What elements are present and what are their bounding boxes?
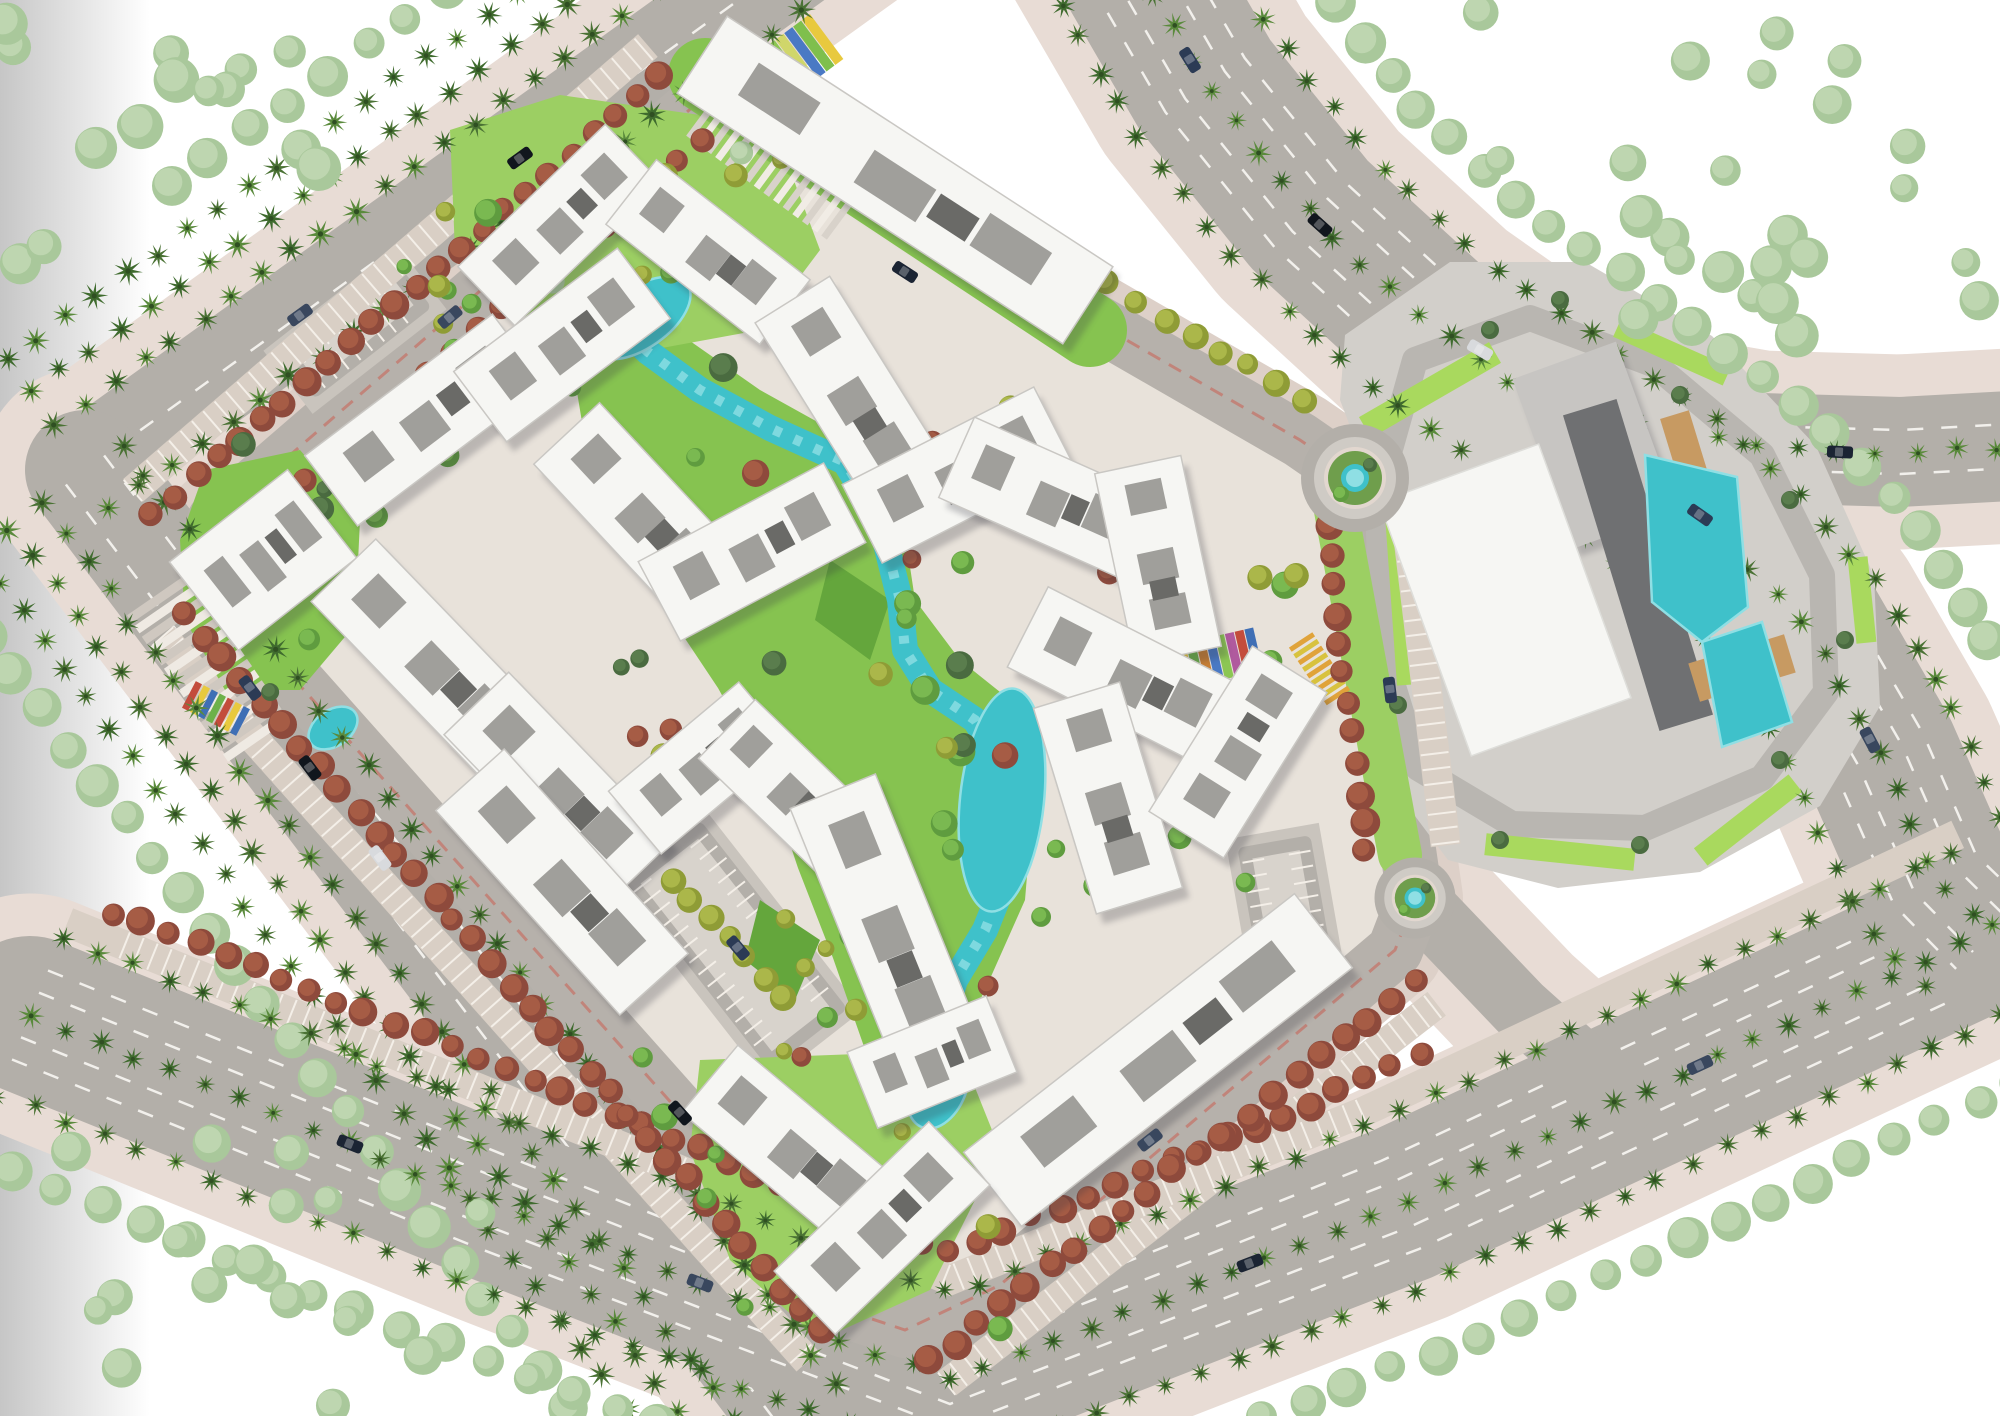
round-tree-light	[251, 407, 269, 425]
palm-core	[1388, 284, 1393, 289]
round-tree-light	[209, 445, 226, 462]
round-tree-light	[1380, 989, 1399, 1008]
palm-core	[168, 1066, 172, 1070]
palm-core	[1896, 787, 1901, 792]
palm-core	[168, 979, 172, 983]
round-tree-light	[771, 986, 790, 1005]
palm-core	[273, 647, 278, 652]
palm-core	[1726, 1142, 1730, 1146]
palm-core	[1261, 17, 1266, 22]
round-tree-light	[300, 1060, 327, 1087]
palm-core	[92, 293, 97, 298]
round-tree-light	[547, 1078, 568, 1099]
round-tree-light	[1815, 87, 1842, 114]
palm-core	[149, 304, 154, 309]
palm-core	[308, 855, 313, 860]
palm-core	[237, 769, 242, 774]
palm-core	[367, 763, 372, 768]
round-tree-light	[1487, 147, 1507, 167]
palm-core	[232, 818, 237, 823]
car-roof	[1835, 447, 1843, 456]
palm-core	[1874, 577, 1878, 581]
palm-core	[153, 788, 158, 793]
palm-core	[699, 1367, 704, 1372]
round-tree-light	[1012, 1274, 1033, 1295]
palm-core	[374, 941, 379, 946]
round-tree-light	[1406, 970, 1422, 986]
palm-core	[1750, 1037, 1754, 1041]
round-tree-light	[1322, 545, 1339, 562]
palm-core	[249, 849, 254, 854]
round-tree-light	[1238, 355, 1253, 370]
palm-core	[268, 216, 273, 221]
round-tree-light	[687, 449, 700, 462]
round-tree-light	[129, 1207, 155, 1233]
palm-core	[1134, 134, 1139, 139]
palm-core	[419, 1002, 424, 1007]
palm-core	[413, 1172, 418, 1177]
palm-core	[229, 294, 234, 299]
round-tree-light	[270, 711, 290, 731]
round-tree-light	[1632, 837, 1645, 850]
palm-core	[626, 1252, 630, 1256]
palm-core	[274, 166, 279, 171]
palm-core	[808, 1353, 813, 1358]
palm-core	[167, 340, 171, 344]
palm-core	[259, 270, 264, 275]
round-tree-light	[937, 738, 952, 753]
round-tree-light	[299, 980, 315, 996]
palm-core	[1120, 1310, 1124, 1314]
palm-core	[501, 97, 506, 102]
round-tree-light	[25, 690, 52, 717]
round-tree-light	[1482, 322, 1495, 335]
palm-core	[533, 76, 537, 80]
palm-core	[1925, 859, 1929, 863]
palm-core	[1933, 677, 1938, 682]
round-tree-light	[896, 592, 915, 611]
round-tree-light	[355, 29, 377, 51]
palm-core	[409, 827, 414, 832]
palm-core	[1795, 1115, 1799, 1119]
palm-core	[588, 1145, 593, 1150]
round-tree-light	[426, 884, 447, 905]
palm-core	[556, 1223, 561, 1228]
palm-core	[84, 694, 88, 698]
round-tree-light	[1421, 1338, 1448, 1365]
palm-core	[495, 941, 500, 946]
round-tree-light	[299, 148, 330, 179]
round-tree-light	[725, 165, 742, 182]
round-tree-light	[1672, 387, 1685, 400]
roundabout-north	[1346, 469, 1364, 487]
master-plan	[0, 0, 2000, 1416]
round-tree-light	[164, 1226, 187, 1249]
palm-core	[1309, 1328, 1314, 1333]
palm-core	[1397, 1108, 1401, 1112]
palm-core	[316, 1221, 320, 1225]
round-tree-light	[993, 744, 1012, 763]
palm-core	[173, 812, 178, 817]
palm-core	[106, 506, 111, 511]
round-tree-light	[209, 644, 230, 665]
palm-core	[1652, 377, 1657, 382]
round-tree-light	[1364, 459, 1374, 469]
palm-core	[34, 1103, 38, 1107]
palm-core	[1691, 1162, 1695, 1166]
round-tree-light	[1920, 1106, 1942, 1128]
round-tree-light	[1354, 1010, 1374, 1030]
round-tree-light	[730, 1233, 750, 1253]
palm-core	[156, 254, 160, 258]
palm-core	[187, 527, 192, 532]
round-tree-light	[236, 1246, 264, 1274]
palm-core	[518, 970, 522, 974]
palm-core	[454, 1278, 459, 1283]
palm-core	[446, 1088, 450, 1092]
palm-core	[39, 500, 44, 505]
palm-core	[1929, 1045, 1934, 1050]
round-tree-light	[188, 463, 206, 481]
round-tree-light	[1926, 552, 1954, 580]
palm-core	[1895, 1062, 1899, 1066]
palm-core	[1368, 1214, 1372, 1218]
palm-core	[231, 420, 236, 425]
palm-core	[204, 317, 208, 321]
palm-core	[388, 129, 392, 133]
palm-core	[402, 1111, 407, 1116]
round-tree-light	[350, 999, 370, 1019]
palm-core	[1824, 525, 1829, 530]
round-tree-light	[1622, 197, 1652, 227]
palm-core	[1286, 46, 1291, 51]
palm-core	[664, 1330, 668, 1334]
round-tree-light	[1090, 1217, 1109, 1236]
round-tree-light	[1133, 1161, 1149, 1177]
palm-core	[375, 1065, 379, 1069]
palm-core	[209, 788, 214, 793]
palm-core	[622, 1266, 627, 1271]
round-tree-light	[634, 1048, 648, 1062]
palm-core	[285, 372, 290, 377]
palm-core	[1459, 448, 1463, 452]
round-tree-light	[444, 1247, 471, 1274]
round-tree-light	[467, 1200, 488, 1221]
palm-core	[134, 1147, 138, 1151]
palm-core	[1196, 1281, 1200, 1285]
round-tree-light	[605, 105, 622, 122]
round-tree-light	[406, 1338, 433, 1365]
palm-core	[1371, 386, 1375, 390]
palm-core	[1260, 277, 1264, 281]
palm-core	[665, 1269, 669, 1273]
palm-core	[573, 1207, 578, 1212]
palm-core	[492, 1292, 496, 1296]
round-tree-light	[1126, 292, 1142, 308]
palm-core	[1297, 1244, 1301, 1248]
round-tree-light	[317, 351, 335, 369]
round-tree-light	[128, 908, 148, 928]
palm-core	[1982, 781, 1986, 785]
palm-core	[1644, 1089, 1649, 1094]
palm-core	[1406, 1200, 1410, 1204]
round-tree-light	[463, 295, 477, 309]
palm-core	[1855, 988, 1859, 992]
round-tree-light	[526, 1071, 542, 1087]
round-tree-light	[1770, 217, 1798, 245]
round-tree-light	[1712, 157, 1733, 178]
palm-core	[1623, 1194, 1627, 1198]
palm-core	[770, 33, 774, 37]
round-tree-light	[450, 238, 470, 258]
palm-core	[517, 1121, 521, 1125]
palm-core	[318, 231, 323, 236]
round-tree-light	[86, 1188, 112, 1214]
round-tree-light	[189, 930, 208, 949]
palm-core	[763, 1218, 767, 1222]
round-tree-light	[360, 310, 378, 328]
palm-core	[4, 528, 9, 533]
round-tree-light	[943, 840, 958, 855]
round-tree-light	[1748, 362, 1771, 385]
round-tree-light	[1569, 233, 1593, 257]
round-tree-light	[1353, 1067, 1370, 1084]
palm-core	[276, 882, 280, 886]
round-tree-light	[138, 843, 161, 866]
palm-core	[343, 970, 348, 975]
palm-core	[1312, 333, 1317, 338]
palm-core	[483, 1106, 488, 1111]
round-tree-light	[708, 1146, 720, 1158]
round-tree-light	[1329, 1370, 1357, 1398]
round-tree-light	[294, 369, 314, 389]
round-tree-light	[1210, 343, 1227, 360]
palm-core	[1463, 241, 1467, 245]
palm-core	[209, 1179, 213, 1183]
palm-core	[626, 1161, 631, 1166]
palm-core	[1362, 1124, 1366, 1128]
palm-core	[729, 1201, 733, 1205]
palm-core	[1949, 851, 1953, 855]
palm-core	[407, 1054, 412, 1059]
palm-core	[268, 1016, 273, 1021]
round-tree-light	[385, 1313, 411, 1339]
round-tree-light	[195, 77, 216, 98]
round-tree-light	[1378, 60, 1402, 84]
round-tree-light	[1552, 292, 1565, 305]
round-tree-light	[777, 910, 791, 924]
palm-core	[1395, 403, 1400, 408]
palm-core	[200, 441, 205, 446]
round-tree-light	[1338, 693, 1354, 709]
palm-core	[449, 1183, 453, 1187]
palm-core	[455, 37, 459, 41]
palm-core	[799, 7, 804, 12]
palm-core	[599, 1372, 604, 1377]
palm-core	[170, 463, 174, 467]
palm-core	[84, 403, 88, 407]
palm-core	[1449, 334, 1454, 339]
palm-core	[1873, 452, 1876, 455]
palm-core	[509, 42, 514, 47]
round-tree-light	[189, 140, 217, 168]
palm-core	[355, 154, 360, 159]
palm-core	[317, 937, 322, 942]
round-tree-light	[1705, 253, 1734, 282]
round-tree-light	[989, 1317, 1007, 1335]
palm-core	[131, 753, 136, 758]
round-tree-light	[1325, 604, 1345, 624]
palm-core	[1815, 830, 1820, 835]
palm-core	[440, 1029, 445, 1034]
round-tree-light	[1880, 483, 1903, 506]
palm-core	[1803, 796, 1807, 800]
palm-core	[1588, 1209, 1592, 1213]
palm-core	[1288, 309, 1292, 313]
palm-core	[1674, 981, 1679, 986]
round-tree-light	[677, 1164, 696, 1183]
palm-core	[1923, 960, 1928, 965]
round-tree-light	[165, 874, 194, 903]
palm-core	[442, 140, 447, 145]
palm-core	[942, 1288, 946, 1292]
palm-core	[1520, 1240, 1524, 1244]
round-tree-light	[1970, 622, 1998, 650]
round-tree-light	[195, 1126, 222, 1153]
palm-core	[51, 422, 56, 427]
palm-core	[533, 1284, 537, 1288]
round-tree-light	[1376, 1353, 1397, 1374]
round-tree-light	[614, 660, 626, 672]
round-tree-light	[521, 996, 540, 1015]
round-tree-light	[1953, 249, 1973, 269]
palm-core	[567, 1260, 571, 1264]
round-tree-light	[1830, 46, 1854, 70]
palm-core	[106, 727, 111, 732]
palm-core	[1051, 1339, 1055, 1343]
palm-core	[1406, 188, 1410, 192]
palm-core	[1076, 33, 1080, 37]
palm-core	[631, 1344, 635, 1348]
round-tree-light	[1837, 632, 1850, 645]
palm-core	[1294, 1157, 1298, 1161]
palm-core	[364, 99, 369, 104]
palm-core	[1099, 72, 1104, 77]
round-tree-light	[818, 1008, 833, 1023]
round-tree-light	[350, 801, 369, 820]
palm-core	[22, 608, 27, 613]
palm-core	[1799, 492, 1803, 496]
palm-core	[948, 1377, 952, 1381]
palm-core	[1568, 1028, 1572, 1032]
round-tree-light	[1412, 1044, 1428, 1060]
round-tree-light	[989, 1291, 1009, 1311]
palm-core	[141, 474, 145, 478]
palm-core	[578, 1346, 583, 1351]
palm-core	[63, 1121, 68, 1126]
palm-core	[1414, 1290, 1418, 1294]
round-tree-light	[287, 737, 305, 755]
round-tree-light	[965, 1311, 983, 1329]
palm-core	[1280, 179, 1284, 183]
round-tree-light	[1156, 310, 1174, 328]
round-tree-light	[1288, 1062, 1308, 1082]
round-tree-light	[382, 292, 403, 313]
round-tree-light	[1713, 1204, 1741, 1232]
round-tree-light	[1347, 24, 1376, 53]
round-tree-light	[755, 968, 773, 986]
round-tree-light	[1503, 1301, 1529, 1327]
round-tree-light	[636, 1127, 655, 1146]
round-tree-light	[335, 1307, 356, 1328]
round-tree-light	[663, 1130, 680, 1147]
round-tree-light	[140, 503, 157, 520]
round-tree-light	[154, 168, 182, 196]
palm-core	[1417, 313, 1421, 317]
palm-core	[1524, 288, 1528, 292]
round-tree-light	[1675, 309, 1703, 337]
palm-core	[1115, 99, 1120, 104]
round-tree-light	[600, 1080, 617, 1097]
round-tree-light	[1950, 590, 1978, 618]
palm-core	[316, 709, 321, 714]
palm-core	[1380, 1303, 1384, 1307]
palm-core	[340, 735, 345, 740]
palm-core	[433, 1084, 438, 1089]
palm-core	[1094, 1411, 1099, 1416]
round-tree-light	[819, 941, 831, 953]
palm-core	[593, 1333, 597, 1337]
palm-core	[119, 327, 124, 332]
palm-core	[1118, 1222, 1122, 1226]
round-tree-light	[1294, 390, 1311, 407]
palm-core	[373, 1078, 378, 1083]
palm-core	[1948, 706, 1953, 711]
palm-core	[689, 1357, 694, 1362]
palm-core	[1329, 236, 1334, 241]
round-tree-light	[1781, 388, 1809, 416]
round-tree-light	[271, 1190, 296, 1215]
palm-core	[1204, 225, 1208, 229]
palm-core	[125, 268, 130, 273]
palm-core	[561, 1318, 565, 1322]
round-tree-light	[244, 953, 262, 971]
palm-core	[1916, 646, 1921, 651]
palm-core	[201, 841, 206, 846]
master-plan-svg	[0, 0, 2000, 1416]
palm-core	[1443, 1181, 1448, 1186]
round-tree-light	[410, 1207, 440, 1237]
round-tree-light	[384, 1013, 403, 1032]
palm-core	[125, 622, 129, 626]
round-tree-light	[1772, 752, 1785, 765]
palm-core	[421, 1266, 425, 1270]
round-tree-light	[1492, 832, 1505, 845]
round-tree-light	[158, 923, 174, 939]
round-tree-light	[1608, 255, 1635, 282]
palm-core	[240, 905, 245, 910]
palm-core	[1590, 330, 1595, 335]
palm-core	[1786, 1023, 1791, 1028]
round-tree-light	[763, 652, 780, 669]
round-tree-light	[467, 1284, 491, 1308]
palm-core	[1808, 918, 1813, 923]
palm-core	[1837, 683, 1842, 688]
palm-core	[215, 208, 219, 212]
palm-core	[288, 247, 293, 252]
palm-core	[100, 1040, 105, 1045]
palm-core	[258, 397, 263, 402]
